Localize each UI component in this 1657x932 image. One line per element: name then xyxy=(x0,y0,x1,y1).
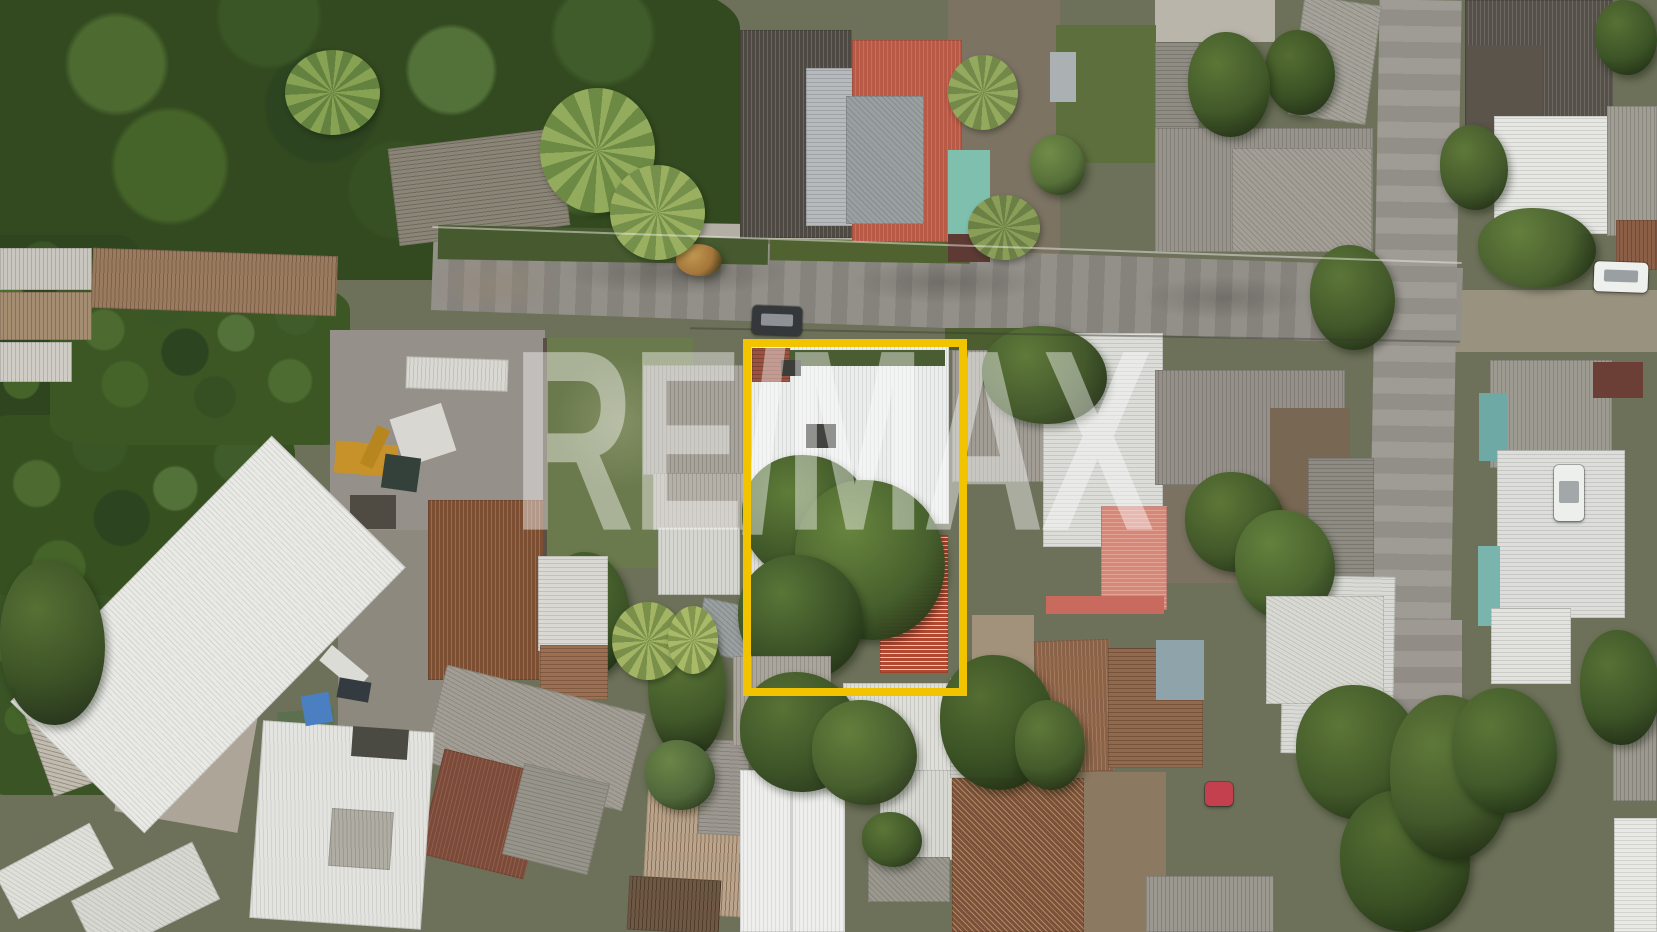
palm-canopy-3 xyxy=(285,50,380,135)
aerial-photo: RE/MAX xyxy=(0,0,1657,932)
gray-shed-mid xyxy=(846,96,924,224)
agave-plants-1 xyxy=(948,55,1018,130)
gray-hip-roof-tr xyxy=(1232,148,1372,252)
dark-plank-roof xyxy=(627,876,722,932)
tin-roof-white-left xyxy=(0,248,92,290)
tin-roof-rust-row xyxy=(91,248,338,317)
property-highlight-box xyxy=(743,339,967,696)
rust-tile-roof-big xyxy=(952,778,1084,932)
parked-car-white-2 xyxy=(1554,465,1584,521)
road-dirt-patch-left xyxy=(430,255,560,315)
trees-east-of-road-2 xyxy=(1478,208,1596,288)
salmon-hip-roof xyxy=(1101,506,1167,610)
gable-ridge-bottom xyxy=(790,770,793,932)
trees-top-right-corner xyxy=(1595,0,1657,75)
blue-tarp xyxy=(301,692,334,726)
white-building-dark-gap xyxy=(351,726,409,760)
gray-shed-small-tr xyxy=(1050,52,1076,102)
white-small-roof-center xyxy=(658,527,740,595)
road-wet-stain-3 xyxy=(1140,276,1310,320)
dark-vehicle-yard xyxy=(381,454,421,493)
blue-gray-shed-bc xyxy=(1156,640,1204,700)
gray-roof-center-1 xyxy=(643,365,747,475)
dark-red-shed-right xyxy=(1593,362,1643,398)
trees-bottom-c5 xyxy=(862,812,922,867)
white-roof-corner-br xyxy=(1614,818,1657,932)
red-vehicle-bottom xyxy=(1205,782,1233,806)
agave-plants-2 xyxy=(968,195,1040,260)
trees-bottom-c4 xyxy=(645,740,715,810)
palm-bottom-2 xyxy=(668,606,718,674)
light-roof-center-2 xyxy=(653,473,747,530)
tin-roof-rust-left xyxy=(0,292,92,340)
fence-line-lawn xyxy=(543,338,547,560)
trees-bottom-c7 xyxy=(1015,700,1085,790)
white-rust-roof-bc xyxy=(538,556,608,651)
garden-shrub xyxy=(1030,135,1085,195)
road-wet-stain-2 xyxy=(850,260,1040,304)
palm-canopy-2 xyxy=(610,165,705,260)
dirt-strip-right xyxy=(1452,290,1657,352)
tin-roof-white-left-2 xyxy=(0,342,72,382)
white-building-gray-patch xyxy=(328,808,394,870)
trees-right-col-2 xyxy=(1580,630,1657,745)
trees-east-of-road-1 xyxy=(1440,125,1508,210)
parked-car-dark-windshield xyxy=(761,314,793,327)
parked-car-dark xyxy=(752,305,803,336)
steel-beam-pile xyxy=(428,500,546,680)
white-strip-roof xyxy=(405,356,508,392)
trees-west-of-road-2 xyxy=(1265,30,1335,115)
pink-roof-strip xyxy=(1046,596,1164,614)
white-roof-right-2 xyxy=(1491,608,1571,684)
gray-roof-right-edge xyxy=(1607,106,1657,236)
parked-car-white-east xyxy=(1593,261,1648,293)
gray-hip-roof-bottom xyxy=(1146,876,1274,932)
parked-car-white-2-windshield xyxy=(1559,481,1578,503)
parked-car-white-east-windshield xyxy=(1604,270,1639,283)
